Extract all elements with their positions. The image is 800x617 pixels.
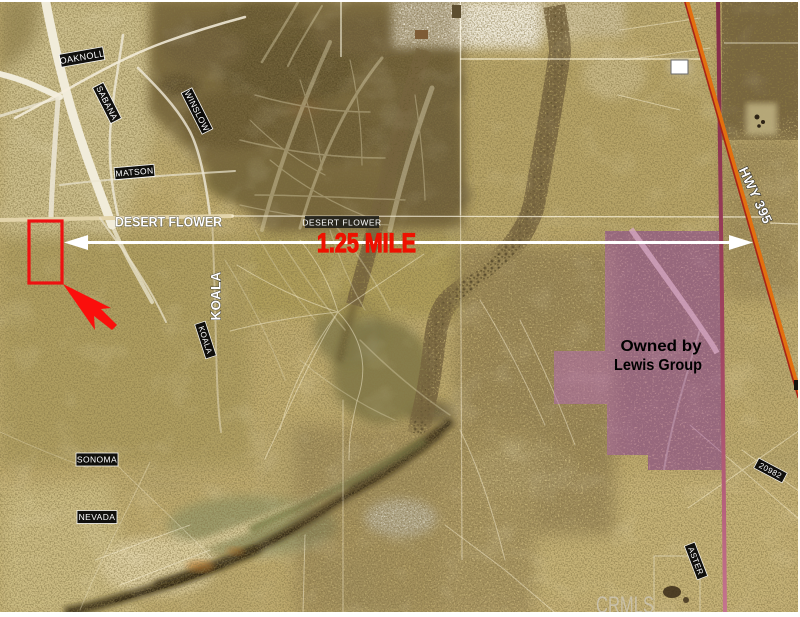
svg-text:Lewis Group: Lewis Group — [614, 357, 702, 374]
svg-text:SONOMA: SONOMA — [77, 455, 117, 465]
svg-text:DESERT FLOWER: DESERT FLOWER — [302, 218, 381, 228]
svg-text:NEVADA: NEVADA — [79, 512, 116, 522]
svg-text:Owned by: Owned by — [621, 338, 702, 355]
svg-text:KOALA: KOALA — [209, 271, 224, 320]
svg-text:DESERT FLOWER: DESERT FLOWER — [115, 215, 222, 230]
svg-text:1.25 MILE: 1.25 MILE — [317, 228, 416, 258]
